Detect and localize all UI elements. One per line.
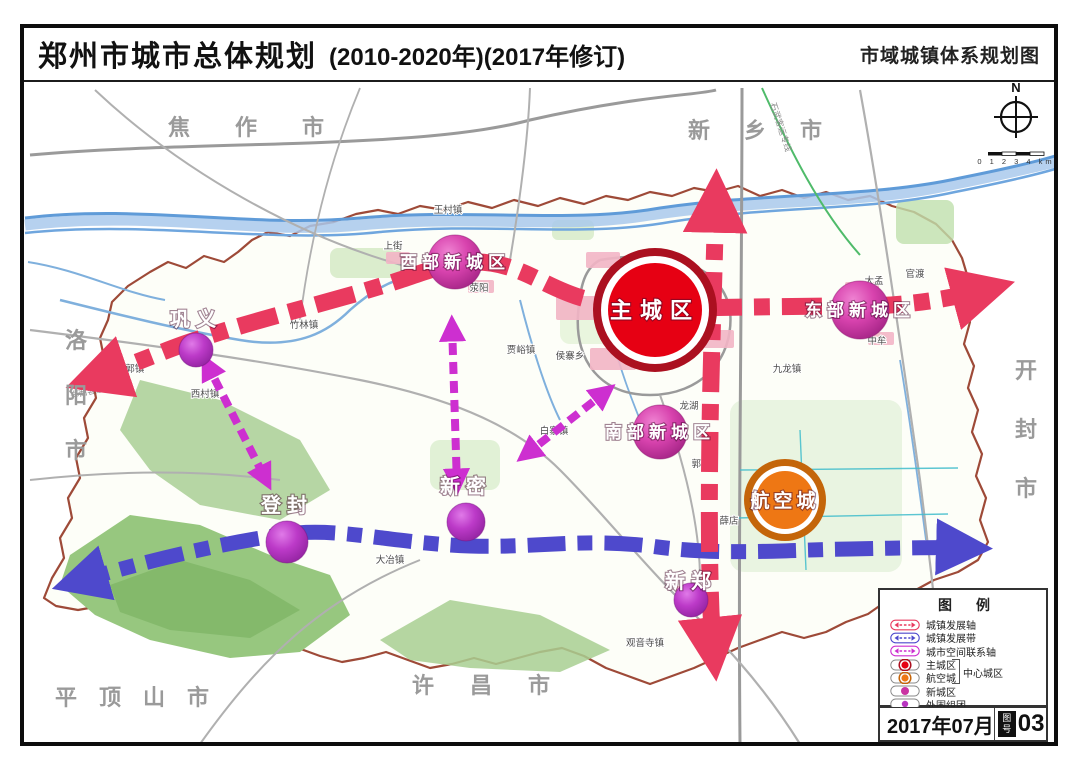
town-label: 侯寨乡 xyxy=(556,350,585,362)
city-node-label: 东部新城区 xyxy=(805,300,915,320)
town-label: 竹林镇 xyxy=(290,319,319,331)
page-subtitle: (2010-2020年)(2017年修订) xyxy=(329,37,625,72)
town-label: 大冶镇 xyxy=(376,554,405,566)
city-node-label: 西部新城区 xyxy=(400,252,510,272)
neighbor-city-label: 洛阳市 xyxy=(65,328,88,463)
town-label: 龙湖 xyxy=(679,400,698,412)
town-label: 西村镇 xyxy=(191,388,220,400)
sheet-number-cell: 图 号 03 xyxy=(994,708,1052,740)
legend-symbol-dot-new xyxy=(890,685,920,697)
city-node-label: 主城区 xyxy=(610,298,700,323)
legend-bracket-label: 中心城区 xyxy=(963,665,1003,680)
title-block: 2017年07月 图 号 03 xyxy=(878,707,1048,742)
city-node-label: 南部新城区 xyxy=(605,422,715,442)
city-node-label: 新郑 xyxy=(665,569,717,593)
legend-item: 新城区 xyxy=(890,684,1038,697)
legend-title: 图例 xyxy=(890,595,1038,615)
header: 郑州市城市总体规划 (2010-2020年)(2017年修订) 市域城镇体系规划… xyxy=(24,28,1054,82)
neighbor-city-label: 许昌市 xyxy=(412,673,586,698)
sheet-number: 03 xyxy=(1016,710,1050,738)
legend-symbol-axis-blue xyxy=(890,632,920,644)
north-label: N xyxy=(1011,80,1020,95)
legend-item: 城市空间联系轴 xyxy=(890,645,1038,658)
town-label: 上街 xyxy=(383,240,403,252)
sheet-date: 2017年07月 xyxy=(880,710,994,739)
city-node-label: 航空城 xyxy=(750,489,819,512)
town-label: 官渡 xyxy=(905,268,925,280)
neighbor-city-label: 平顶山市 xyxy=(55,685,231,710)
scale-bar: 0 1 2 3 4 km xyxy=(977,152,1054,166)
city-node-航空城: 航空城 xyxy=(744,459,826,541)
legend-symbol-axis-magenta xyxy=(890,645,920,657)
legend-item: 城镇发展轴 xyxy=(890,618,1038,631)
sheet-number-badge: 图 号 xyxy=(998,711,1016,737)
legend-item: 城镇发展带 xyxy=(890,631,1038,644)
legend-symbol-axis-red xyxy=(890,619,920,631)
town-label: 观音寺镇 xyxy=(626,637,665,649)
town-label: 荥阳 xyxy=(469,282,488,294)
legend: 图例 中心城区 城镇发展轴城镇发展带城市空间联系轴主城区航空城新城区外围组团 xyxy=(878,588,1048,707)
neighbor-city-label: 焦作市 xyxy=(167,115,369,140)
scale-text: 0 1 2 3 4 km xyxy=(977,157,1054,166)
legend-symbol-dot-main xyxy=(890,659,920,671)
city-node-label: 巩义 xyxy=(170,308,222,331)
town-label: 贾峪镇 xyxy=(507,344,536,356)
legend-items: 中心城区 城镇发展轴城镇发展带城市空间联系轴主城区航空城新城区外围组团 xyxy=(890,618,1038,711)
town-label: 薛店 xyxy=(719,515,738,527)
north-arrow: N 0 1 2 3 4 km xyxy=(977,80,1054,166)
planning-map-sheet: { "header": { "title": "郑州市城市总体规划", "sub… xyxy=(0,0,1080,767)
legend-symbol-dot-aviation xyxy=(890,672,920,684)
city-node-主城区: 主城区 xyxy=(593,248,717,372)
neighbor-city-label: 开封市 xyxy=(1015,358,1037,501)
map-name: 市域城镇体系规划图 xyxy=(860,41,1040,68)
page-title: 郑州市城市总体规划 xyxy=(38,33,317,75)
sheet-word-bottom: 号 xyxy=(1002,724,1011,734)
legend-bracket xyxy=(952,659,960,684)
sheet-word-top: 图 xyxy=(1002,713,1011,723)
neighbor-city-label: 新乡市 xyxy=(688,118,856,143)
axis-link-west-xinmi xyxy=(452,324,457,486)
city-node-label: 新密 xyxy=(440,474,492,498)
town-label: 九龙镇 xyxy=(773,363,802,375)
town-label: 王村镇 xyxy=(434,204,463,216)
city-node-label: 登封 xyxy=(260,493,313,517)
